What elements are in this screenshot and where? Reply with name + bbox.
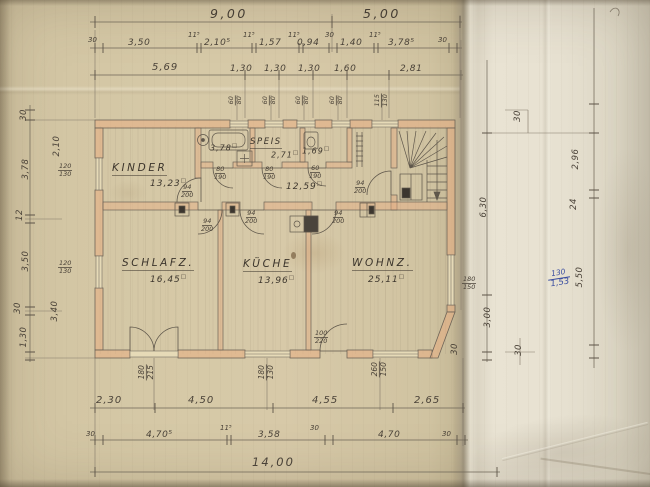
dim-t3-3: 1,30 — [298, 64, 320, 74]
dim-left-1: 3,78 — [21, 151, 31, 187]
dim-b1-1: 4,50 — [188, 395, 214, 406]
window-left-1 — [96, 158, 102, 190]
door-size-bad: 80190 — [214, 166, 226, 181]
dim-b2-1: 4,70⁵ — [146, 430, 173, 440]
dim-t2-4: 11⁵ — [243, 31, 255, 39]
room-area-speis: 2,71□ — [271, 150, 299, 160]
dim-right-outer-0: 30 — [513, 98, 523, 134]
window-wohnz — [373, 351, 418, 357]
window-size-left-2: 120130 — [58, 260, 72, 275]
ladder-icon — [356, 132, 363, 167]
window-size-left-1: 120130 — [58, 163, 72, 178]
door-size-kueche: 94200 — [245, 210, 257, 225]
dim-left-5: 1,30 — [19, 319, 29, 355]
window-size-top-3: 6080 — [295, 95, 310, 105]
dim-left-inner-0: 2,10 — [52, 128, 62, 164]
window-top-3 — [297, 121, 315, 127]
dim-b2-4: 30 — [310, 424, 319, 432]
dim-b1-0: 2,30 — [96, 395, 122, 406]
dim-b2-6: 30 — [442, 430, 451, 438]
room-label-kueche: KÜCHE — [243, 258, 292, 272]
window-left-2 — [96, 256, 102, 288]
room-area-wohnz: 25,11□ — [368, 274, 405, 285]
dim-t3-2: 1,30 — [264, 64, 286, 74]
french-door-left — [130, 327, 154, 351]
dim-right-outer-1: 2,96 — [571, 141, 581, 177]
window-size-bottom-2: 180130 — [258, 364, 275, 380]
window-size-right: 180150 — [462, 276, 476, 291]
dim-t3-0: 5,69 — [152, 62, 178, 73]
dim-b1-2: 4,55 — [312, 395, 338, 406]
room-area-schlafz: 16,45□ — [150, 274, 187, 285]
dim-b2-2: 11⁵ — [220, 424, 232, 432]
french-door-right — [154, 327, 178, 351]
dim-t2-3: 2,10⁵ — [204, 38, 231, 48]
window-size-top-4: 6080 — [329, 95, 344, 105]
window-right — [448, 255, 454, 305]
window-size-top-2: 6080 — [262, 95, 277, 105]
window-top-5 — [372, 121, 398, 127]
room-label-schlafz: SCHLAFZ. — [122, 257, 194, 271]
dim-t2-7: 0,94 — [297, 38, 319, 48]
dim-t3-4: 1,60 — [334, 64, 356, 74]
dim-right-outer-3: 5,50 — [575, 259, 585, 295]
room-area-kueche: 13,96□ — [258, 275, 295, 286]
dim-right-outer-2: 24 — [569, 186, 579, 222]
dim-b3-total: 14,00 — [252, 455, 295, 469]
door-size-kinder: 94200 — [181, 184, 193, 199]
window-top-1 — [230, 121, 248, 127]
french-door-threshold — [130, 351, 178, 357]
window-size-top-1: 6080 — [228, 95, 243, 105]
dim-left-inner-1: 3,40 — [50, 293, 60, 329]
dim-t3-5: 2,81 — [400, 64, 422, 74]
room-area-wc: 1,69□ — [302, 146, 330, 156]
room-label-kinder: KINDER — [112, 162, 167, 176]
pencil-squiggle — [610, 8, 619, 16]
window-size-top-5: 115130 — [374, 93, 389, 107]
dim-b2-0: 30 — [86, 430, 95, 438]
dim-right-outer-4: 30 — [514, 332, 524, 368]
room-label-speis: SPEIS — [250, 137, 282, 149]
dim-b2-5: 4,70 — [378, 430, 400, 440]
dim-right-inner-0: 6,30 — [479, 189, 489, 225]
dim-top-5m: 5,00 — [363, 6, 401, 21]
dim-right-inner-1: 3,00 — [483, 299, 493, 335]
window-size-bottom-1: 180215 — [138, 364, 155, 380]
dim-right-inner-2: 30 — [450, 331, 460, 367]
door-size-wohnz: 94200 — [332, 210, 344, 225]
dim-top-9m: 9,00 — [210, 6, 248, 21]
dim-t2-9: 1,40 — [340, 38, 362, 48]
dim-b1-3: 2,65 — [414, 395, 440, 406]
dim-t2-5: 1,57 — [259, 38, 281, 48]
dim-t2-12: 30 — [438, 36, 447, 44]
floor-plan-drawing — [0, 0, 650, 487]
dim-left-2: 12 — [15, 197, 25, 233]
staircase — [356, 131, 447, 202]
door-size-schlafz: 94200 — [201, 218, 213, 233]
door-size-wc: 60190 — [309, 165, 321, 180]
winder-treads — [399, 131, 447, 168]
dim-t2-8: 30 — [325, 31, 334, 39]
door-size-stairs: 94200 — [354, 180, 366, 195]
dim-b2-3: 3,58 — [258, 430, 280, 440]
door-stairs — [367, 171, 391, 195]
dim-t2-0: 30 — [88, 36, 97, 44]
dim-t2-10: 11⁵ — [369, 31, 381, 39]
window-kueche — [245, 351, 290, 357]
stove-icon — [290, 216, 318, 232]
window-size-bottom-3: 260150 — [371, 361, 388, 377]
door-size-entrance: 100220 — [314, 330, 328, 345]
blue-ink-note: 130 1,53 — [547, 266, 572, 289]
window-top-4 — [332, 121, 350, 127]
dim-t3-1: 1,30 — [230, 64, 252, 74]
floor-plan-photo: 9,00 5,00 30 3,50 11⁵ 2,10⁵ 11⁵ 1,57 11⁵… — [0, 0, 650, 487]
dim-t2-2: 11⁵ — [188, 31, 200, 39]
dim-t2-11: 3,78⁵ — [388, 38, 415, 48]
door-size-speis: 80190 — [263, 166, 275, 181]
room-label-wohnz: WOHNZ. — [352, 257, 413, 271]
room-area-flur: 12,59□ — [286, 181, 323, 192]
window-top-2 — [265, 121, 283, 127]
dim-t2-1: 3,50 — [128, 38, 150, 48]
dim-left-3: 3,50 — [21, 243, 31, 279]
stairs-direction-arrow — [434, 140, 440, 200]
room-area-bad: 3,78□ — [210, 143, 238, 153]
dim-left-0: 30 — [19, 97, 29, 133]
chimney-flue-stairs — [400, 174, 422, 200]
